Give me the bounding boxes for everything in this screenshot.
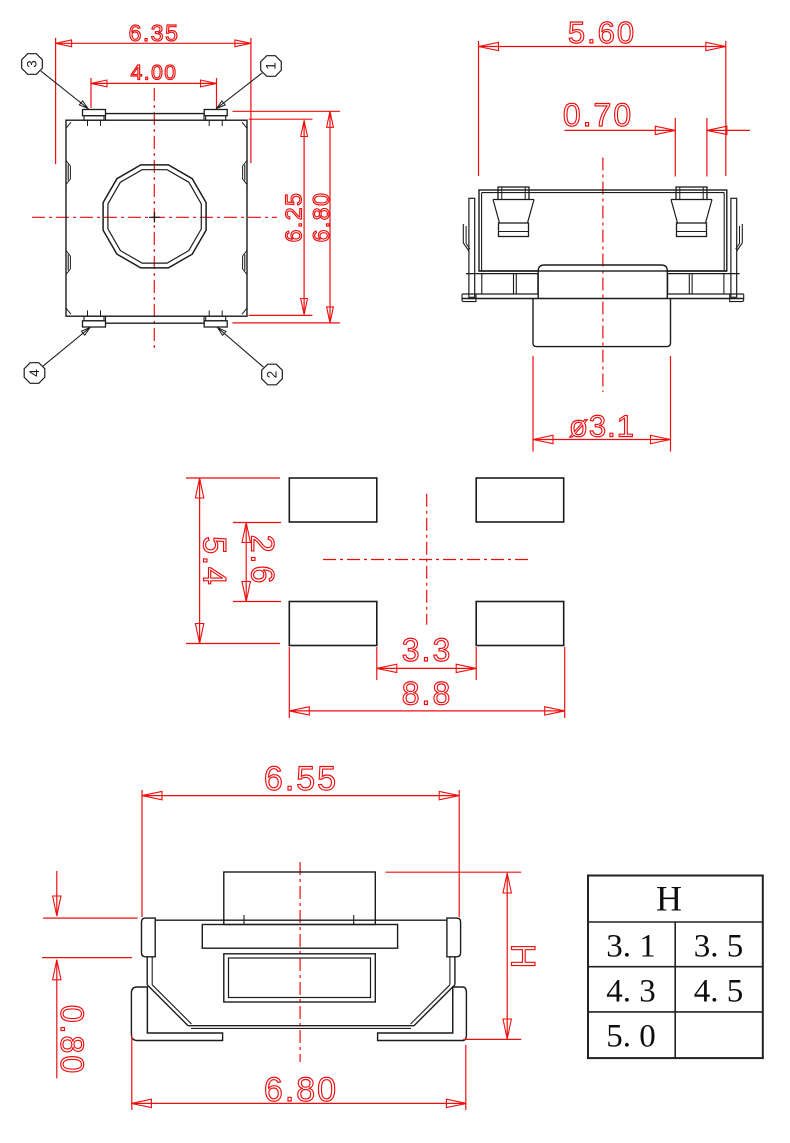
svg-text:ø3.1: ø3.1 <box>569 409 635 444</box>
svg-text:4. 3: 4. 3 <box>606 974 656 1010</box>
svg-text:H: H <box>656 879 682 919</box>
svg-text:1: 1 <box>264 62 279 70</box>
svg-text:H: H <box>504 944 542 969</box>
svg-text:3.3: 3.3 <box>402 632 452 668</box>
svg-text:6.25: 6.25 <box>281 192 307 243</box>
svg-text:4.00: 4.00 <box>131 62 178 85</box>
svg-text:0.80: 0.80 <box>54 1005 90 1075</box>
svg-text:6.35: 6.35 <box>129 20 180 46</box>
svg-text:0.70: 0.70 <box>563 97 633 133</box>
svg-text:4: 4 <box>27 369 42 377</box>
svg-text:3: 3 <box>25 60 40 68</box>
svg-text:3. 5: 3. 5 <box>694 929 744 965</box>
svg-text:5. 0: 5. 0 <box>606 1019 656 1055</box>
svg-text:5.60: 5.60 <box>568 15 636 50</box>
svg-text:4. 5: 4. 5 <box>694 974 744 1010</box>
svg-text:8.8: 8.8 <box>402 676 452 712</box>
svg-text:2: 2 <box>265 371 280 379</box>
svg-text:6.55: 6.55 <box>264 760 338 798</box>
svg-text:3. 1: 3. 1 <box>606 929 656 965</box>
svg-text:5.4: 5.4 <box>197 536 233 586</box>
